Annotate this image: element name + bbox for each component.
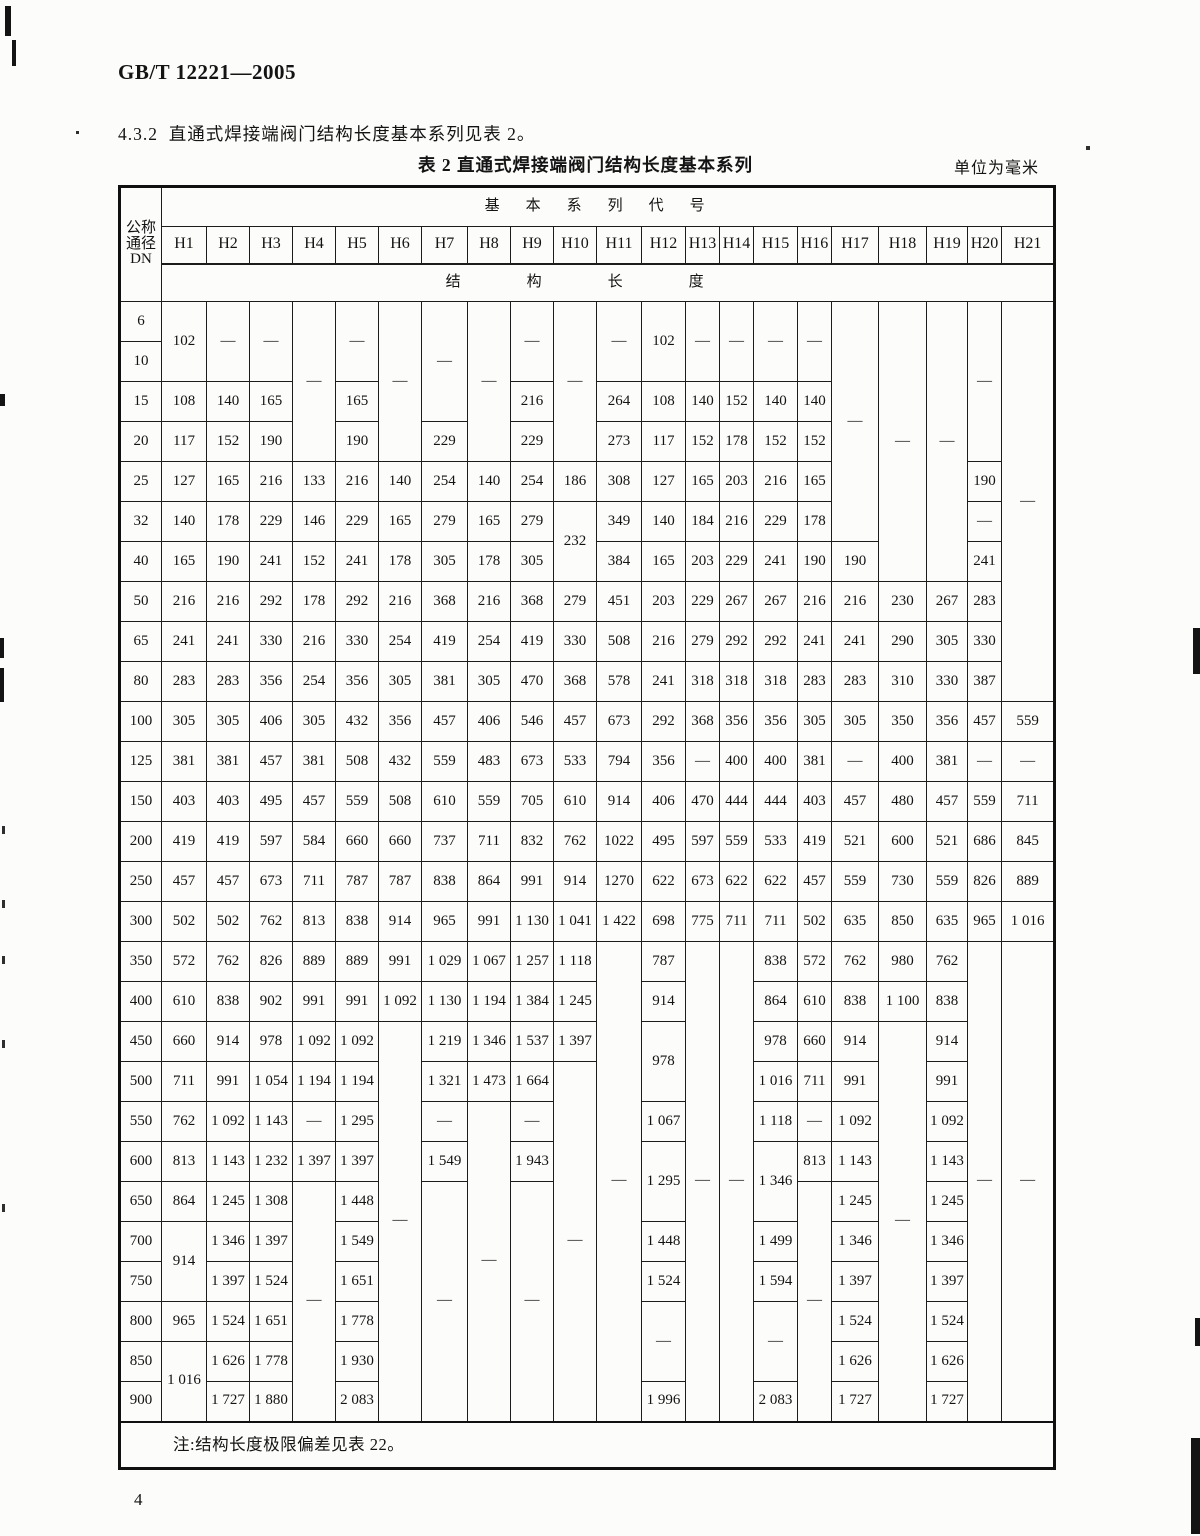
- value-cell: 457: [798, 862, 832, 902]
- scan-artifact: [0, 394, 5, 406]
- value-cell: 1 626: [207, 1342, 250, 1382]
- value-cell: 610: [162, 982, 207, 1022]
- value-cell: 597: [686, 822, 720, 862]
- value-cell: 572: [162, 942, 207, 982]
- value-cell: 559: [927, 862, 968, 902]
- dn-cell: 100: [120, 702, 162, 742]
- value-cell: 673: [511, 742, 554, 782]
- value-cell: 914: [832, 1022, 879, 1062]
- value-cell: 711: [720, 902, 754, 942]
- value-cell: 1 524: [927, 1302, 968, 1342]
- series-label-cell: H19: [927, 227, 968, 264]
- value-cell: 457: [207, 862, 250, 902]
- value-cell: 597: [250, 822, 293, 862]
- value-cell: 254: [293, 662, 336, 702]
- value-cell: 381: [293, 742, 336, 782]
- value-cell: 241: [798, 622, 832, 662]
- value-cell: 1 727: [207, 1382, 250, 1422]
- value-cell: 978: [250, 1022, 293, 1062]
- table-row: 2504574576737117877878388649919141270622…: [120, 862, 1055, 902]
- value-cell: 864: [162, 1182, 207, 1222]
- scan-artifact: [2, 1040, 5, 1048]
- value-cell: 711: [798, 1062, 832, 1102]
- dn-cell: 900: [120, 1382, 162, 1422]
- value-cell: 457: [832, 782, 879, 822]
- value-cell: 444: [720, 782, 754, 822]
- value-cell: 267: [927, 582, 968, 622]
- value-cell: 305: [207, 702, 250, 742]
- value-cell: 190: [336, 422, 379, 462]
- value-cell: 229: [336, 502, 379, 542]
- value-cell: 1270: [597, 862, 642, 902]
- value-cell: 1 308: [250, 1182, 293, 1222]
- unit-label: 单位为毫米: [954, 154, 1039, 178]
- value-cell: 279: [422, 502, 468, 542]
- scan-artifact: [2, 826, 5, 834]
- dn-cell: 600: [120, 1142, 162, 1182]
- value-cell: 1 996: [642, 1382, 686, 1422]
- value-cell: 1 041: [554, 902, 597, 942]
- value-cell: 864: [468, 862, 511, 902]
- value-cell: 152: [798, 422, 832, 462]
- value-cell: 546: [511, 702, 554, 742]
- value-cell: 864: [754, 982, 798, 1022]
- value-cell: 1 295: [642, 1142, 686, 1222]
- value-cell: 305: [422, 542, 468, 582]
- value-cell: 610: [554, 782, 597, 822]
- value-cell: 1 549: [422, 1142, 468, 1182]
- value-cell: 305: [832, 702, 879, 742]
- value-cell: 368: [686, 702, 720, 742]
- document-code: GB/T 12221—2005: [118, 60, 296, 85]
- length-header-cell: 结构长度: [162, 264, 1055, 302]
- value-cell: 305: [379, 662, 422, 702]
- value-cell: 1 232: [250, 1142, 293, 1182]
- value-cell: 165: [379, 502, 422, 542]
- value-cell: —: [422, 1182, 468, 1422]
- series-label-cell: H12: [642, 227, 686, 264]
- value-cell: 140: [798, 382, 832, 422]
- value-cell: —: [968, 742, 1002, 782]
- value-cell: 1 219: [422, 1022, 468, 1062]
- value-cell: 140: [642, 502, 686, 542]
- value-cell: 838: [754, 942, 798, 982]
- value-cell: 279: [554, 582, 597, 622]
- series-label-cell: H10: [554, 227, 597, 264]
- scan-artifact: [2, 1204, 5, 1212]
- value-cell: 1 194: [468, 982, 511, 1022]
- value-cell: 400: [754, 742, 798, 782]
- value-cell: 508: [379, 782, 422, 822]
- table-caption-row: 表 2 直通式焊接端阀门结构长度基本系列 单位为毫米: [118, 152, 1053, 178]
- value-cell: 216: [798, 582, 832, 622]
- value-cell: 400: [720, 742, 754, 782]
- value-cell: 241: [207, 622, 250, 662]
- value-cell: 419: [422, 622, 468, 662]
- value-cell: 1 930: [336, 1342, 379, 1382]
- value-cell: 711: [754, 902, 798, 942]
- value-cell: —: [554, 1062, 597, 1422]
- value-cell: 457: [422, 702, 468, 742]
- value-cell: 991: [293, 982, 336, 1022]
- scan-artifact: [1195, 1318, 1200, 1346]
- value-cell: 292: [336, 582, 379, 622]
- value-cell: 1 524: [250, 1262, 293, 1302]
- value-cell: 508: [336, 742, 379, 782]
- value-cell: 838: [207, 982, 250, 1022]
- value-cell: 419: [511, 622, 554, 662]
- series-label-cell: H14: [720, 227, 754, 264]
- value-cell: —: [597, 302, 642, 382]
- dn-cell: 200: [120, 822, 162, 862]
- value-cell: 1 092: [336, 1022, 379, 1062]
- value-cell: 117: [642, 422, 686, 462]
- value-cell: 305: [468, 662, 511, 702]
- table-row: 1504034034954575595086105597056109144064…: [120, 782, 1055, 822]
- value-cell: 444: [754, 782, 798, 822]
- value-cell: 1 118: [754, 1102, 798, 1142]
- value-cell: 1 016: [754, 1062, 798, 1102]
- value-cell: 432: [379, 742, 422, 782]
- value-cell: 267: [754, 582, 798, 622]
- value-cell: —: [379, 1022, 422, 1422]
- corner-line: DN: [121, 252, 161, 268]
- value-cell: 368: [422, 582, 468, 622]
- scan-artifact: [0, 638, 4, 658]
- value-cell: 838: [422, 862, 468, 902]
- value-cell: —: [1002, 302, 1055, 702]
- value-cell: 914: [207, 1022, 250, 1062]
- dn-cell: 650: [120, 1182, 162, 1222]
- value-cell: 308: [597, 462, 642, 502]
- dn-cell: 850: [120, 1342, 162, 1382]
- section-heading: 4.3.2 直通式焊接端阀门结构长度基本系列见表 2。: [118, 121, 535, 146]
- value-cell: 102: [642, 302, 686, 382]
- value-cell: 914: [927, 1022, 968, 1062]
- value-cell: 102: [162, 302, 207, 382]
- scan-artifact: [2, 956, 5, 964]
- value-cell: 1 257: [511, 942, 554, 982]
- value-cell: 165: [686, 462, 720, 502]
- value-cell: 978: [642, 1022, 686, 1102]
- value-cell: 305: [511, 542, 554, 582]
- scan-artifact: [76, 131, 79, 134]
- value-cell: 108: [642, 382, 686, 422]
- value-cell: —: [554, 302, 597, 462]
- value-cell: 356: [720, 702, 754, 742]
- value-cell: 432: [336, 702, 379, 742]
- value-cell: 356: [642, 742, 686, 782]
- value-cell: 826: [250, 942, 293, 982]
- value-cell: 508: [597, 622, 642, 662]
- value-cell: 737: [422, 822, 468, 862]
- value-cell: —: [968, 942, 1002, 1422]
- value-cell: 184: [686, 502, 720, 542]
- value-cell: 108: [162, 382, 207, 422]
- series-label-cell: H1: [162, 227, 207, 264]
- value-cell: 980: [879, 942, 927, 982]
- value-cell: —: [686, 942, 720, 1422]
- value-cell: 178: [468, 542, 511, 582]
- value-cell: 165: [336, 382, 379, 422]
- value-cell: 635: [832, 902, 879, 942]
- value-cell: 152: [686, 422, 720, 462]
- value-cell: 356: [250, 662, 293, 702]
- value-cell: 190: [968, 462, 1002, 502]
- value-cell: 381: [927, 742, 968, 782]
- dn-cell: 550: [120, 1102, 162, 1142]
- value-cell: 310: [879, 662, 927, 702]
- scan-artifact: [1193, 628, 1200, 674]
- value-cell: 292: [250, 582, 293, 622]
- value-cell: —: [832, 302, 879, 542]
- value-cell: 1 346: [468, 1022, 511, 1062]
- value-cell: 762: [927, 942, 968, 982]
- value-cell: 1 524: [642, 1262, 686, 1302]
- table-row: 2004194195975846606607377118327621022495…: [120, 822, 1055, 862]
- value-cell: 133: [293, 462, 336, 502]
- value-cell: 787: [336, 862, 379, 902]
- value-cell: 190: [798, 542, 832, 582]
- value-cell: 502: [798, 902, 832, 942]
- value-cell: 660: [336, 822, 379, 862]
- value-cell: —: [1002, 742, 1055, 782]
- value-cell: 794: [597, 742, 642, 782]
- value-cell: 356: [754, 702, 798, 742]
- value-cell: 1 092: [293, 1022, 336, 1062]
- dn-cell: 700: [120, 1222, 162, 1262]
- value-cell: —: [879, 302, 927, 582]
- value-cell: 686: [968, 822, 1002, 862]
- dn-cell: 20: [120, 422, 162, 462]
- value-cell: 203: [720, 462, 754, 502]
- value-cell: 521: [927, 822, 968, 862]
- value-cell: 356: [336, 662, 379, 702]
- value-cell: 965: [422, 902, 468, 942]
- value-cell: 1 245: [554, 982, 597, 1022]
- series-label-cell: H20: [968, 227, 1002, 264]
- dn-cell: 50: [120, 582, 162, 622]
- value-cell: 1 016: [162, 1342, 207, 1422]
- value-cell: 584: [293, 822, 336, 862]
- value-cell: 914: [162, 1222, 207, 1302]
- value-cell: 190: [207, 542, 250, 582]
- value-cell: 216: [250, 462, 293, 502]
- corner-line: 公称: [121, 221, 161, 237]
- value-cell: 381: [422, 662, 468, 702]
- value-cell: 1 397: [554, 1022, 597, 1062]
- value-cell: 914: [597, 782, 642, 822]
- value-cell: 330: [250, 622, 293, 662]
- dn-cell: 450: [120, 1022, 162, 1062]
- value-cell: 117: [162, 422, 207, 462]
- table-row: 1003053054063054323564574065464576732923…: [120, 702, 1055, 742]
- value-cell: 711: [162, 1062, 207, 1102]
- dn-cell: 25: [120, 462, 162, 502]
- value-cell: —: [468, 302, 511, 462]
- value-cell: —: [293, 1182, 336, 1422]
- value-cell: 264: [597, 382, 642, 422]
- value-cell: 622: [642, 862, 686, 902]
- value-cell: —: [720, 302, 754, 382]
- value-cell: 730: [879, 862, 927, 902]
- value-cell: 470: [686, 782, 720, 822]
- dn-cell: 65: [120, 622, 162, 662]
- value-cell: 832: [511, 822, 554, 862]
- series-label-cell: H4: [293, 227, 336, 264]
- value-cell: 457: [968, 702, 1002, 742]
- series-label-cell: H7: [422, 227, 468, 264]
- table-row: 8028328335625435630538130547036857824131…: [120, 662, 1055, 702]
- value-cell: 254: [422, 462, 468, 502]
- dn-cell: 300: [120, 902, 162, 942]
- value-cell: 1 626: [927, 1342, 968, 1382]
- value-cell: 1 130: [422, 982, 468, 1022]
- value-cell: 241: [832, 622, 879, 662]
- value-cell: 152: [720, 382, 754, 422]
- value-cell: 400: [879, 742, 927, 782]
- value-cell: 419: [798, 822, 832, 862]
- value-cell: 356: [379, 702, 422, 742]
- value-cell: 1 143: [250, 1102, 293, 1142]
- value-cell: 838: [832, 982, 879, 1022]
- value-cell: 711: [468, 822, 511, 862]
- value-cell: 1 118: [554, 942, 597, 982]
- dn-cell: 400: [120, 982, 162, 1022]
- value-cell: 1 880: [250, 1382, 293, 1422]
- structural-length-table: 公称通径DN基本系列代号H1H2H3H4H5H6H7H8H9H10H11H12H…: [118, 185, 1056, 1470]
- value-cell: 241: [968, 542, 1002, 582]
- value-cell: 1 626: [832, 1342, 879, 1382]
- value-cell: 559: [720, 822, 754, 862]
- header-row-group: 公称通径DN基本系列代号: [120, 187, 1055, 227]
- value-cell: 457: [162, 862, 207, 902]
- dn-cell: 80: [120, 662, 162, 702]
- value-cell: —: [686, 742, 720, 782]
- value-cell: —: [754, 302, 798, 382]
- value-cell: 140: [207, 382, 250, 422]
- value-cell: 622: [720, 862, 754, 902]
- value-cell: 889: [1002, 862, 1055, 902]
- value-cell: 1 346: [754, 1142, 798, 1222]
- value-cell: 229: [686, 582, 720, 622]
- value-cell: 850: [879, 902, 927, 942]
- value-cell: 673: [250, 862, 293, 902]
- value-cell: 1 524: [832, 1302, 879, 1342]
- value-cell: 216: [720, 502, 754, 542]
- value-cell: 1 651: [336, 1262, 379, 1302]
- value-cell: 1 346: [832, 1222, 879, 1262]
- value-cell: 914: [379, 902, 422, 942]
- value-cell: 229: [511, 422, 554, 462]
- value-cell: 165: [250, 382, 293, 422]
- value-cell: 457: [927, 782, 968, 822]
- value-cell: —: [511, 302, 554, 382]
- series-label-cell: H17: [832, 227, 879, 264]
- value-cell: 1 664: [511, 1062, 554, 1102]
- value-cell: 698: [642, 902, 686, 942]
- table-row: 4006108389029919911 0921 1301 1941 3841 …: [120, 982, 1055, 1022]
- value-cell: 914: [554, 862, 597, 902]
- value-cell: 610: [422, 782, 468, 822]
- table-row: 125381381457381508432559483673533794356—…: [120, 742, 1055, 782]
- value-cell: 600: [879, 822, 927, 862]
- value-cell: 1022: [597, 822, 642, 862]
- value-cell: 305: [927, 622, 968, 662]
- value-cell: 838: [927, 982, 968, 1022]
- series-label-cell: H6: [379, 227, 422, 264]
- value-cell: 1 524: [207, 1302, 250, 1342]
- value-cell: 241: [250, 542, 293, 582]
- value-cell: —: [597, 942, 642, 1422]
- value-cell: 216: [293, 622, 336, 662]
- value-cell: 762: [162, 1102, 207, 1142]
- value-cell: 203: [642, 582, 686, 622]
- value-cell: 1 194: [293, 1062, 336, 1102]
- value-cell: 140: [468, 462, 511, 502]
- table-note: 注:结构长度极限偏差见表 22。: [120, 1422, 1055, 1469]
- value-cell: 146: [293, 502, 336, 542]
- value-cell: 216: [379, 582, 422, 622]
- value-cell: 762: [207, 942, 250, 982]
- value-cell: 622: [754, 862, 798, 902]
- value-cell: 813: [798, 1142, 832, 1182]
- series-label-cell: H9: [511, 227, 554, 264]
- header-row-length: 结构长度: [120, 264, 1055, 302]
- dn-cell: 500: [120, 1062, 162, 1102]
- value-cell: 229: [422, 422, 468, 462]
- value-cell: 559: [422, 742, 468, 782]
- table-footer: 注:结构长度极限偏差见表 22。: [120, 1422, 1055, 1469]
- group-header-cell: 基本系列代号: [162, 187, 1055, 227]
- dn-cell: 125: [120, 742, 162, 782]
- value-cell: 559: [336, 782, 379, 822]
- value-cell: 1 092: [379, 982, 422, 1022]
- value-cell: 1 346: [207, 1222, 250, 1262]
- value-cell: 127: [162, 462, 207, 502]
- value-cell: —: [968, 302, 1002, 462]
- value-cell: 406: [250, 702, 293, 742]
- value-cell: 305: [162, 702, 207, 742]
- value-cell: 991: [336, 982, 379, 1022]
- value-cell: 660: [379, 822, 422, 862]
- value-cell: 292: [642, 702, 686, 742]
- value-cell: 457: [250, 742, 293, 782]
- value-cell: 813: [162, 1142, 207, 1182]
- value-cell: 1 397: [293, 1142, 336, 1182]
- series-label-cell: H3: [250, 227, 293, 264]
- value-cell: 330: [927, 662, 968, 702]
- value-cell: 1 448: [336, 1182, 379, 1222]
- dn-cell: 15: [120, 382, 162, 422]
- value-cell: 254: [379, 622, 422, 662]
- value-cell: 889: [336, 942, 379, 982]
- value-cell: 1 549: [336, 1222, 379, 1262]
- dn-cell: 32: [120, 502, 162, 542]
- value-cell: 521: [832, 822, 879, 862]
- value-cell: —: [832, 742, 879, 782]
- value-cell: 826: [968, 862, 1002, 902]
- value-cell: 1 029: [422, 942, 468, 982]
- value-cell: 381: [207, 742, 250, 782]
- value-cell: 403: [162, 782, 207, 822]
- value-cell: 457: [554, 702, 597, 742]
- value-cell: 165: [207, 462, 250, 502]
- value-cell: 610: [798, 982, 832, 1022]
- value-cell: 283: [798, 662, 832, 702]
- value-cell: 1 194: [336, 1062, 379, 1102]
- value-cell: 384: [597, 542, 642, 582]
